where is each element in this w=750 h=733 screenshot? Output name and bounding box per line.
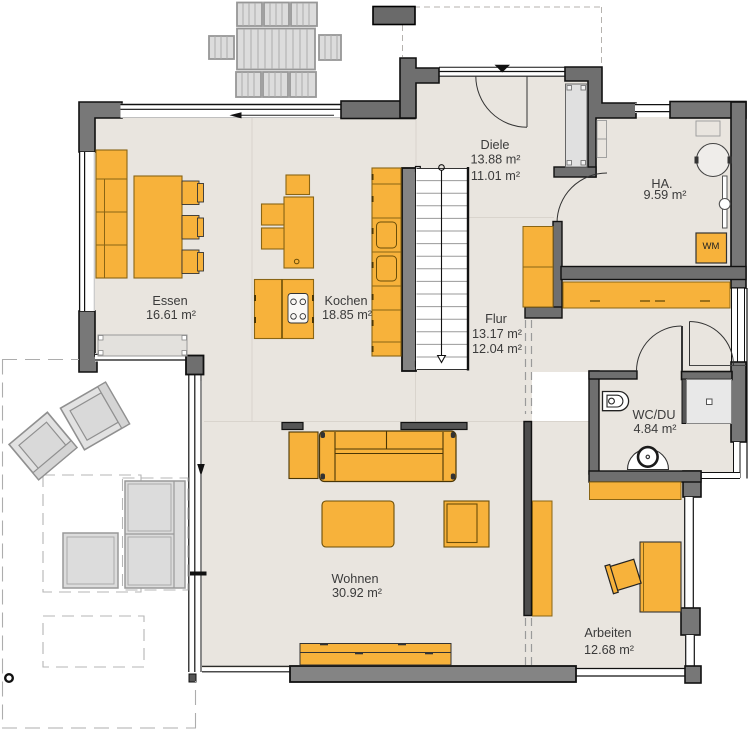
svg-text:4.84 m²: 4.84 m² xyxy=(633,422,676,436)
svg-text:Kochen: Kochen xyxy=(324,294,367,308)
svg-text:9.59 m²: 9.59 m² xyxy=(643,188,686,202)
svg-text:WM: WM xyxy=(703,241,720,252)
svg-text:Wohnen: Wohnen xyxy=(331,572,378,586)
svg-text:13.17 m²: 13.17 m² xyxy=(472,327,522,341)
svg-text:12.68 m²: 12.68 m² xyxy=(584,643,634,657)
svg-text:Diele: Diele xyxy=(481,138,510,152)
svg-text:Arbeiten: Arbeiten xyxy=(584,626,631,640)
svg-text:30.92 m²: 30.92 m² xyxy=(332,586,382,600)
svg-text:13.88 m²: 13.88 m² xyxy=(470,153,520,167)
svg-text:12.04 m²: 12.04 m² xyxy=(472,342,522,356)
svg-text:WC/DU: WC/DU xyxy=(633,408,676,422)
svg-text:16.61 m²: 16.61 m² xyxy=(146,308,196,322)
svg-text:Essen: Essen xyxy=(152,294,187,308)
svg-text:Flur: Flur xyxy=(485,312,508,326)
svg-text:18.85 m²: 18.85 m² xyxy=(322,308,372,322)
svg-text:11.01 m²: 11.01 m² xyxy=(471,169,520,183)
